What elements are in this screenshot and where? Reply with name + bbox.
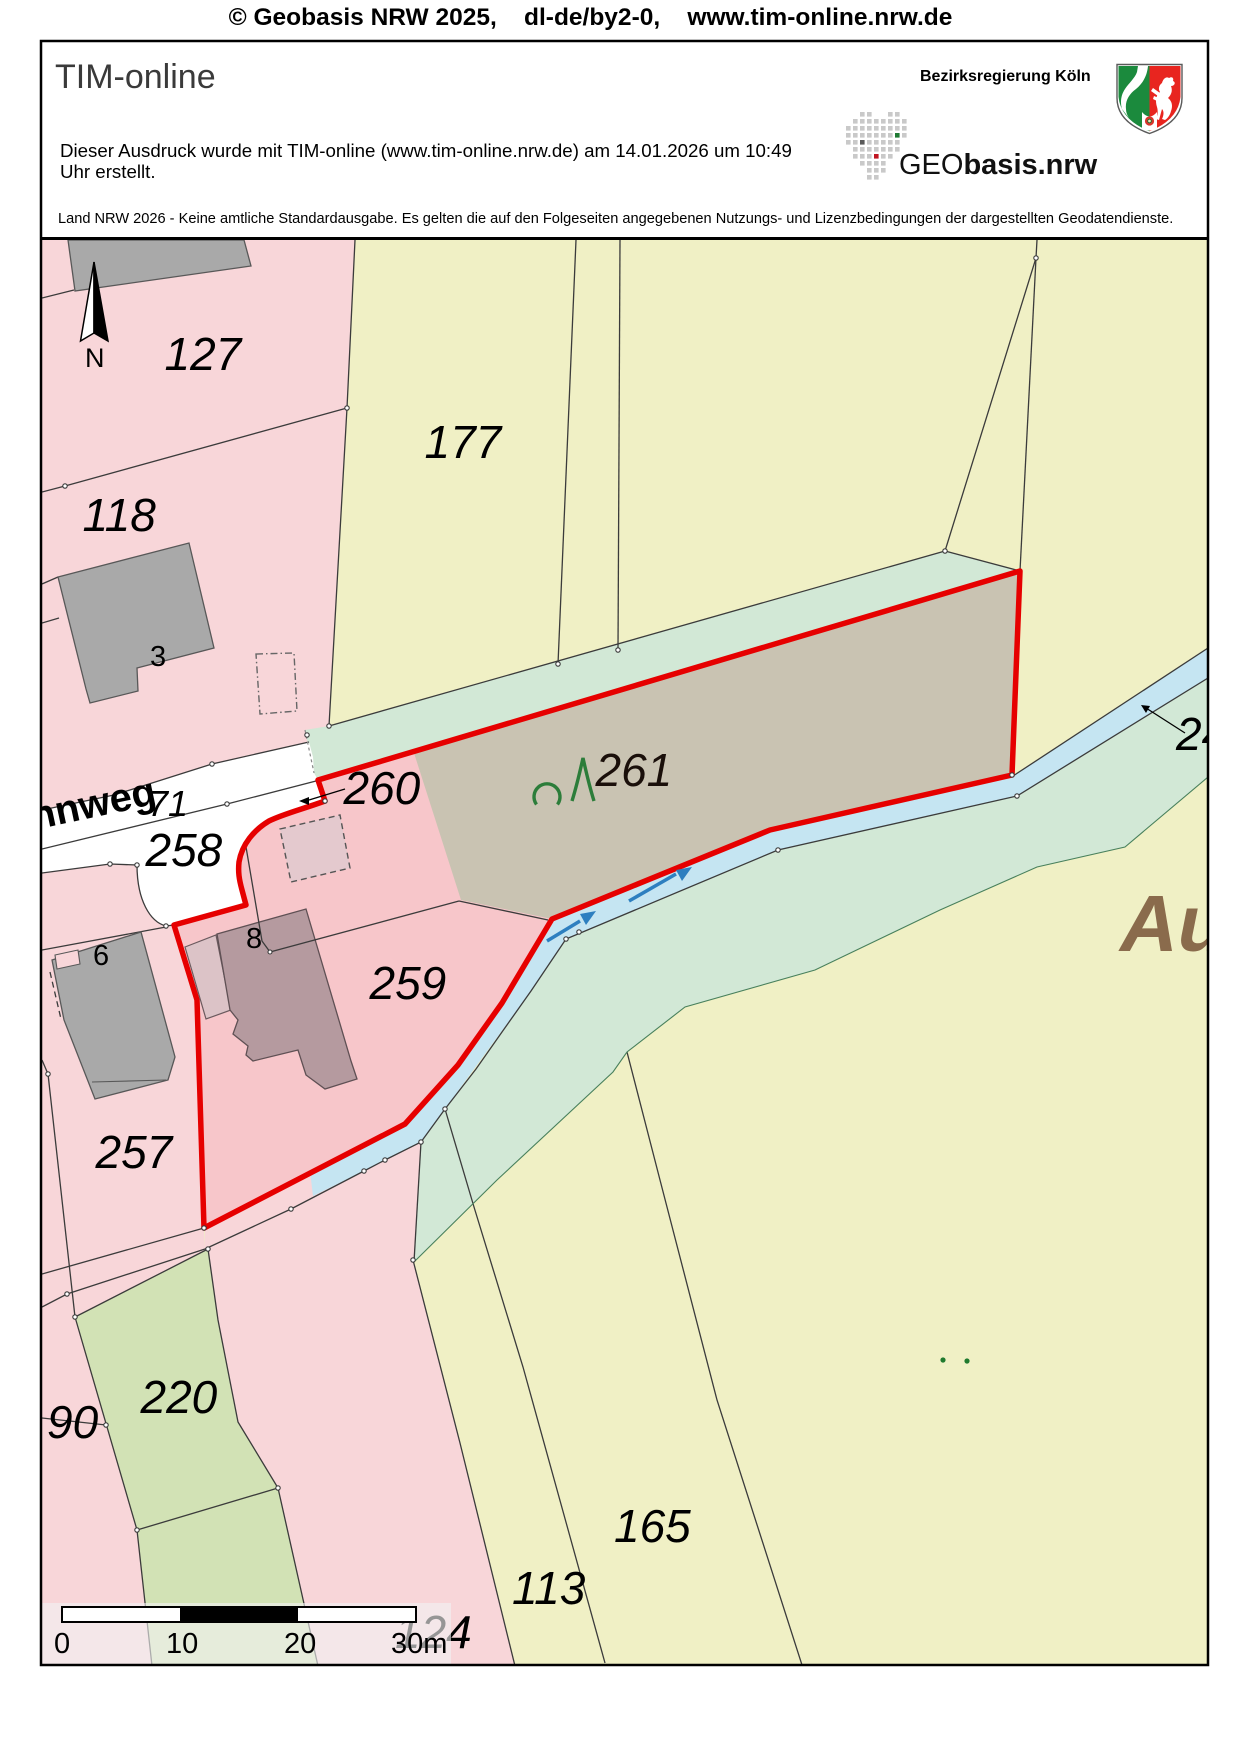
svg-text:258: 258 [145, 824, 223, 876]
svg-text:177: 177 [425, 416, 503, 468]
svg-text:20: 20 [284, 1628, 316, 1660]
svg-text:165: 165 [614, 1500, 691, 1552]
svg-text:10: 10 [166, 1628, 198, 1660]
svg-text:257: 257 [95, 1126, 174, 1178]
svg-text:Au: Au [1118, 879, 1227, 968]
svg-text:30m: 30m [391, 1628, 447, 1660]
svg-text:118: 118 [83, 489, 157, 541]
svg-text:6: 6 [93, 940, 109, 972]
svg-text:90: 90 [47, 1396, 99, 1448]
svg-text:260: 260 [343, 762, 421, 814]
svg-text:127: 127 [165, 328, 243, 380]
svg-text:3: 3 [150, 641, 166, 673]
svg-text:113: 113 [512, 1562, 586, 1614]
svg-text:N: N [85, 343, 105, 373]
svg-text:8: 8 [246, 923, 262, 955]
svg-text:261: 261 [595, 744, 673, 796]
svg-text:GEObasis.nrw: GEObasis.nrw [899, 149, 1098, 181]
svg-text:220: 220 [140, 1371, 218, 1423]
svg-text:259: 259 [369, 957, 447, 1009]
svg-text:0: 0 [54, 1628, 70, 1660]
